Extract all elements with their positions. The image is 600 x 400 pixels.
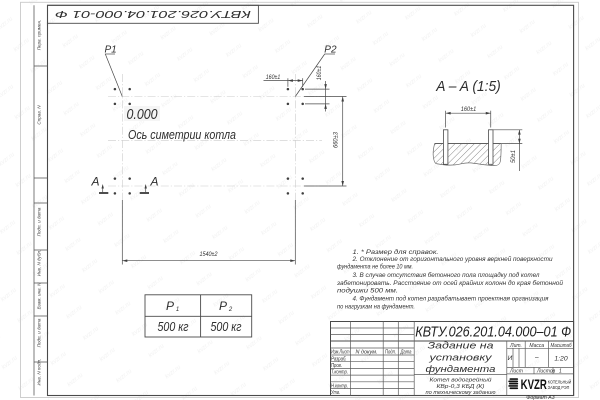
svg-text:Инв. N дубл.: Инв. N дубл. [37, 250, 42, 277]
svg-text:Масштаб: Масштаб [551, 343, 572, 349]
svg-text:P: P [219, 299, 227, 313]
svg-text:КВТУ.026.201.04.000–01 Ф: КВТУ.026.201.04.000–01 Ф [415, 325, 571, 341]
svg-text:4. Фундамент под котел разраба: 4. Фундамент под котел разрабатывает про… [353, 295, 550, 303]
svg-text:И: И [508, 355, 513, 362]
svg-text:1. * Размер для справок.: 1. * Размер для справок. [353, 248, 439, 256]
svg-text:забетонировать. Расстояние от: забетонировать. Расстояние от осей крайн… [336, 279, 563, 287]
svg-text:Перв. примен.: Перв. примен. [37, 20, 42, 51]
svg-text:Лит.: Лит. [509, 343, 522, 349]
svg-text:160±1: 160±1 [317, 66, 323, 81]
svg-text:подушки 500 мм.: подушки 500 мм. [337, 287, 398, 295]
svg-text:660±3: 660±3 [334, 131, 340, 148]
svg-text:установку: установку [428, 353, 493, 364]
svg-text:A: A [91, 175, 100, 189]
svg-text:500 кг: 500 кг [158, 320, 189, 334]
svg-text:50±1: 50±1 [511, 150, 517, 163]
svg-text:Инв. N подл.: Инв. N подл. [37, 359, 42, 386]
svg-text:КОТЕЛЬНЫЙ: КОТЕЛЬНЫЙ [548, 377, 572, 384]
svg-text:500 кг: 500 кг [211, 320, 242, 334]
svg-text:Задание на: Задание на [428, 341, 494, 352]
svg-text:N докум.: N докум. [356, 349, 378, 355]
svg-text:Изм.Лист: Изм.Лист [331, 349, 350, 355]
svg-text:Подп. и дата: Подп. и дата [37, 318, 42, 347]
svg-text:Т.контр.: Т.контр. [331, 370, 348, 376]
svg-text:1: 1 [559, 368, 562, 374]
svg-text:Дата: Дата [400, 349, 412, 355]
svg-text:–: – [534, 354, 539, 361]
svg-text:Справ. N: Справ. N [37, 105, 42, 125]
svg-text:Подп.: Подп. [385, 349, 396, 355]
svg-text:Подп. и дата: Подп. и дата [37, 207, 42, 236]
svg-text:Формат А3: Формат А3 [526, 395, 554, 400]
svg-text:P2: P2 [324, 45, 337, 56]
svg-text:фундамента: фундамента [426, 364, 496, 375]
svg-text:160±1: 160±1 [266, 75, 281, 81]
svg-text:KVZR: KVZR [521, 376, 547, 392]
svg-text:160±1: 160±1 [461, 107, 477, 113]
svg-text:Пров.: Пров. [331, 363, 342, 369]
svg-text:Котел водогрейный: Котел водогрейный [430, 376, 492, 383]
svg-text:по техническому заданию: по техническому заданию [426, 390, 496, 396]
svg-text:2: 2 [228, 307, 233, 313]
svg-text:фундамента не более 10 мм.: фундамента не более 10 мм. [337, 263, 413, 271]
svg-text:Н.контр.: Н.контр. [331, 383, 348, 389]
svg-text:Листов: Листов [536, 368, 556, 374]
svg-text:A: A [150, 175, 159, 189]
svg-text:Разраб.: Разраб. [331, 356, 347, 362]
svg-text:2. Отклонение от горизонтально: 2. Отклонение от горизонтального уровня … [352, 255, 553, 263]
svg-text:1: 1 [176, 307, 179, 313]
svg-text:Масса: Масса [529, 343, 544, 349]
svg-text:1540±2: 1540±2 [200, 252, 219, 258]
svg-text:Утв.: Утв. [331, 390, 340, 396]
svg-text:КВр-0,3 КБД (К): КВр-0,3 КБД (К) [437, 384, 485, 390]
svg-text:по нагрузкам на фундамент.: по нагрузкам на фундамент. [337, 303, 415, 311]
svg-text:A – A (1:5): A – A (1:5) [435, 79, 500, 95]
svg-text:Ось симетрии котла: Ось симетрии котла [128, 128, 236, 142]
svg-text:0.000: 0.000 [127, 107, 158, 123]
svg-text:КВТУ.026.201.04.000-01 Ф: КВТУ.026.201.04.000-01 Ф [55, 8, 251, 19]
svg-text:Лист: Лист [509, 368, 523, 374]
svg-text:1:20: 1:20 [554, 355, 567, 362]
svg-text:ЗАВОД РЭП: ЗАВОД РЭП [548, 385, 570, 390]
svg-text:P1: P1 [105, 45, 117, 56]
svg-text:Взам. инв. N: Взам. инв. N [37, 282, 42, 309]
svg-text:P: P [166, 299, 174, 313]
svg-text:3. В случае отсутствия бетонно: 3. В случае отсутствия бетонного пола пл… [353, 271, 540, 279]
